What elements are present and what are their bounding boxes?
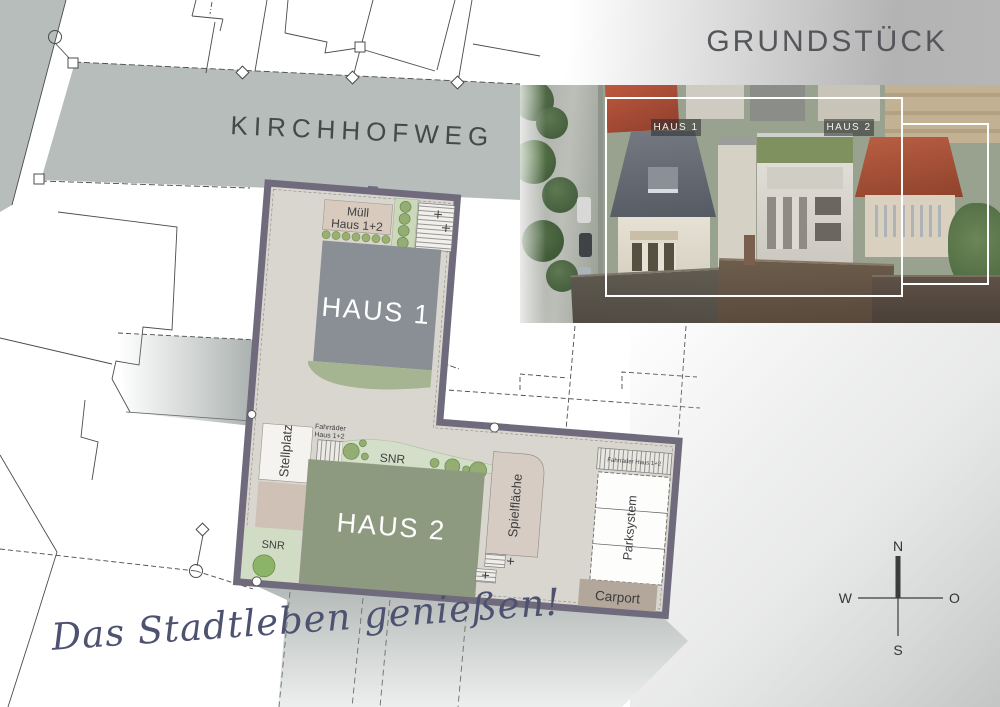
tree <box>542 177 578 213</box>
title-band: GRUNDSTÜCK <box>400 0 1000 86</box>
photo-haus1-tag-text: HAUS 1 <box>653 122 698 133</box>
snr-mid-label: SNR <box>379 451 406 467</box>
snr-bottom-area: SNR <box>241 526 301 582</box>
car <box>579 233 592 257</box>
access-road <box>118 333 258 426</box>
corner-wash <box>630 320 1000 707</box>
beige-box-left <box>255 481 306 531</box>
border-notch <box>368 186 379 194</box>
haus1-footprint: HAUS 1 <box>313 240 441 370</box>
aerial-photo: HAUS 1 HAUS 2 <box>520 85 1000 323</box>
photo-haus2-tag: HAUS 2 <box>824 119 874 136</box>
photo-frame-side <box>901 123 989 285</box>
photo-haus1-tag: HAUS 1 <box>651 119 701 136</box>
page-title: GRUNDSTÜCK <box>706 25 948 59</box>
photo-haus2-tag-text: HAUS 2 <box>826 122 871 133</box>
car <box>577 197 591 223</box>
compass-w-label: W <box>839 590 853 606</box>
compass-s-label: S <box>893 642 902 658</box>
haus2-footprint: HAUS 2 <box>299 459 485 598</box>
parksystem-area: Parksystem <box>590 472 670 585</box>
photo-left-fade <box>520 85 546 323</box>
compass-n-label: N <box>893 538 903 554</box>
snr-bottom-label: SNR <box>261 539 285 553</box>
green-strip-top <box>391 198 418 252</box>
stellplatz-area: Stellplatz <box>259 423 313 483</box>
stairs-top-right <box>415 203 454 252</box>
page: Müll Haus 1+2 <box>0 0 1000 707</box>
compass-o-label: O <box>949 590 960 606</box>
